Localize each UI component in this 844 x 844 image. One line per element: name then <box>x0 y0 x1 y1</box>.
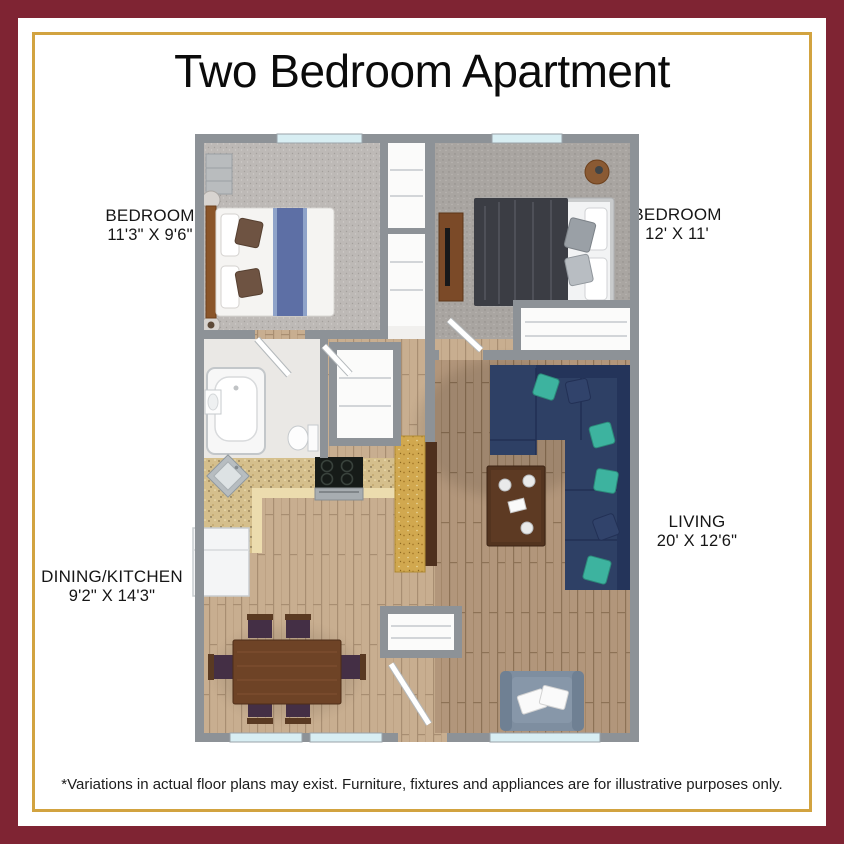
accent-pillow <box>235 218 264 248</box>
linen-closet <box>329 342 401 446</box>
bathtub-drain <box>234 386 239 391</box>
bed-headboard <box>206 206 216 318</box>
wall-left <box>195 134 204 742</box>
window <box>490 733 600 742</box>
window <box>310 733 382 742</box>
armchair <box>500 671 584 731</box>
bathroom-wall <box>320 339 328 458</box>
tv <box>445 228 450 286</box>
oven-front <box>315 488 363 500</box>
cup <box>499 479 511 491</box>
accent-pillow <box>564 254 593 286</box>
front-door-opening <box>398 733 447 742</box>
cup <box>523 475 535 487</box>
window <box>277 134 362 143</box>
disclaimer-text: *Variations in actual floor plans may ex… <box>40 776 804 793</box>
window <box>230 733 302 742</box>
floor-plan <box>177 128 661 750</box>
floor-plan-svg <box>177 128 661 750</box>
sofa-chaise <box>490 365 536 455</box>
bed-blanket <box>474 198 568 306</box>
kitchen-island <box>395 436 425 572</box>
stove-cooktop <box>315 457 363 488</box>
wall-top <box>195 134 639 143</box>
bed-runner <box>273 208 307 316</box>
door-opening <box>439 350 483 360</box>
window <box>492 134 562 143</box>
toilet <box>288 426 308 450</box>
cup <box>521 522 533 534</box>
dresser-gray <box>206 154 232 194</box>
closet <box>388 143 425 326</box>
wall-right <box>630 134 639 742</box>
bedroom-closet <box>513 300 633 350</box>
accent-pillow <box>235 268 263 298</box>
entry-closet <box>380 606 462 658</box>
toilet-tank <box>308 425 318 451</box>
page-title: Two Bedroom Apartment <box>0 44 844 98</box>
door-opening <box>255 330 305 339</box>
dresser <box>439 213 463 301</box>
